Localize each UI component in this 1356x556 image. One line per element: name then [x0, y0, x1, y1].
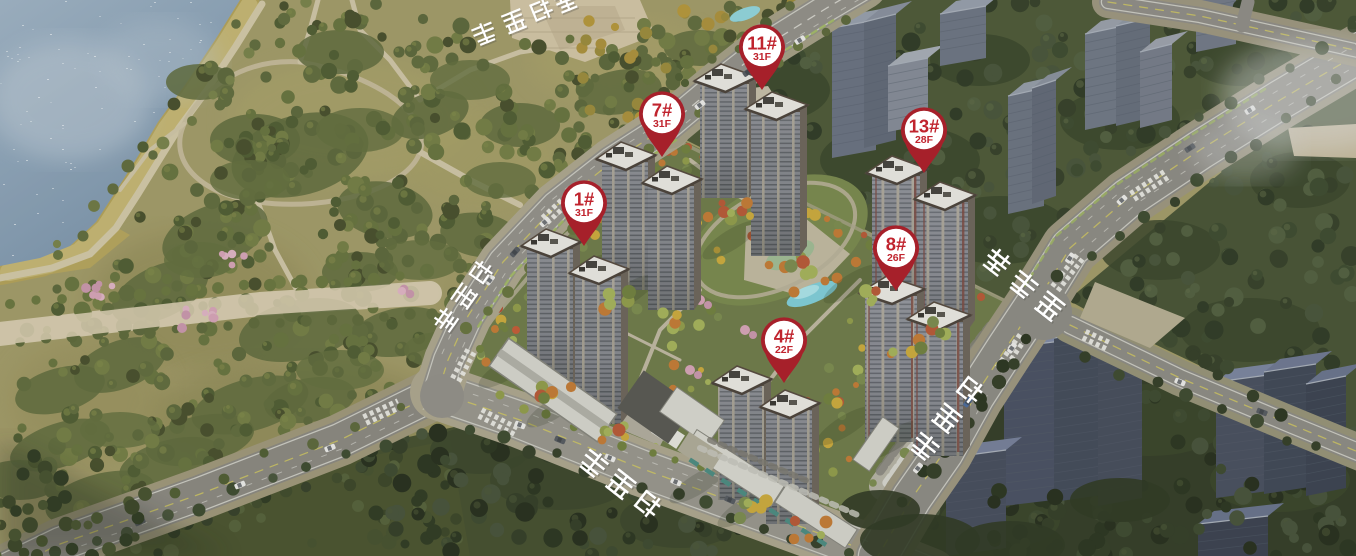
svg-text:31F: 31F: [653, 118, 672, 130]
svg-text:26F: 26F: [887, 252, 906, 264]
svg-text:22F: 22F: [775, 344, 794, 356]
svg-text:31F: 31F: [753, 51, 772, 63]
svg-text:31F: 31F: [575, 207, 594, 219]
svg-text:28F: 28F: [915, 134, 934, 146]
